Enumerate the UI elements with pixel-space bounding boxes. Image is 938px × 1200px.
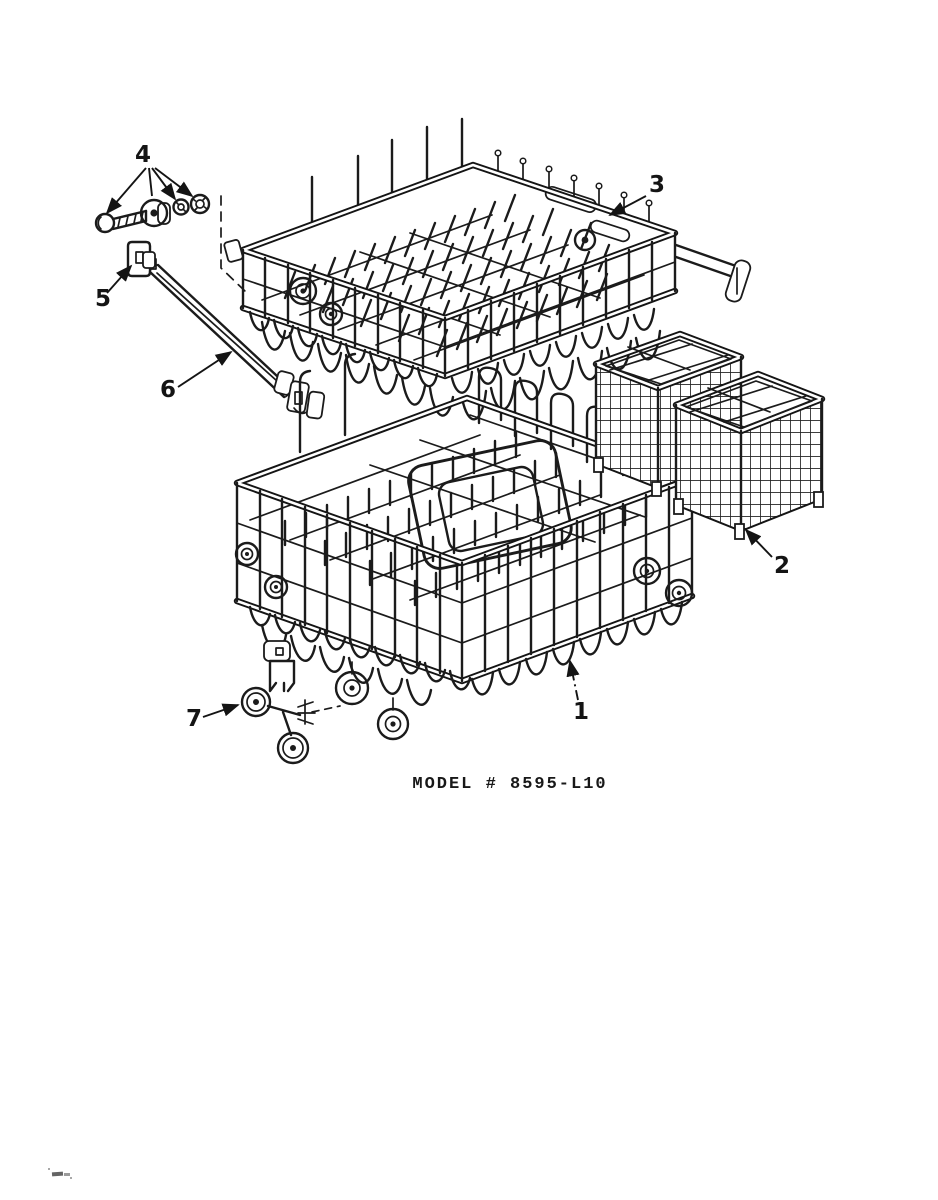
callout-2-leader	[746, 530, 772, 557]
callout-1-leader	[570, 661, 578, 700]
scan-artifact	[48, 1168, 72, 1179]
callout-5: 5	[95, 286, 111, 312]
mounting-hardware-drawing	[96, 195, 209, 232]
callout-6-leader	[178, 352, 231, 387]
callout-1: 1	[573, 699, 589, 725]
callout-4-leader-d	[155, 168, 192, 196]
retainer-clip	[264, 641, 294, 691]
callout-7-leader	[203, 705, 238, 717]
nut	[191, 195, 209, 213]
callout-4: 4	[135, 142, 151, 168]
callout-3-leader	[610, 196, 646, 215]
rack-corner-cap	[224, 239, 244, 262]
callout-7: 7	[186, 706, 202, 732]
wheel-bracket	[268, 700, 315, 735]
dashed-locator-line-7	[312, 706, 340, 712]
callout-3: 3	[649, 172, 665, 198]
callout-4-leader-c	[152, 168, 175, 199]
wheel-assembly-drawing	[242, 641, 340, 763]
callout-2: 2	[774, 553, 790, 579]
callout-4-leader-b	[149, 168, 152, 196]
upper-rack-handle	[676, 245, 752, 303]
dishrack-exploded-diagram: 4 5 6 3 2 1 7 MODEL # 8595-L10	[0, 0, 938, 1200]
silverware-basket-right	[674, 374, 823, 539]
parts-diagram-page: 4 5 6 3 2 1 7 MODEL # 8595-L10	[0, 0, 938, 1200]
washer	[174, 200, 189, 215]
screw	[96, 211, 146, 232]
model-number-label: MODEL # 8595-L10	[412, 775, 607, 794]
callout-6: 6	[160, 377, 176, 403]
callout-4-leader-a	[107, 168, 146, 213]
